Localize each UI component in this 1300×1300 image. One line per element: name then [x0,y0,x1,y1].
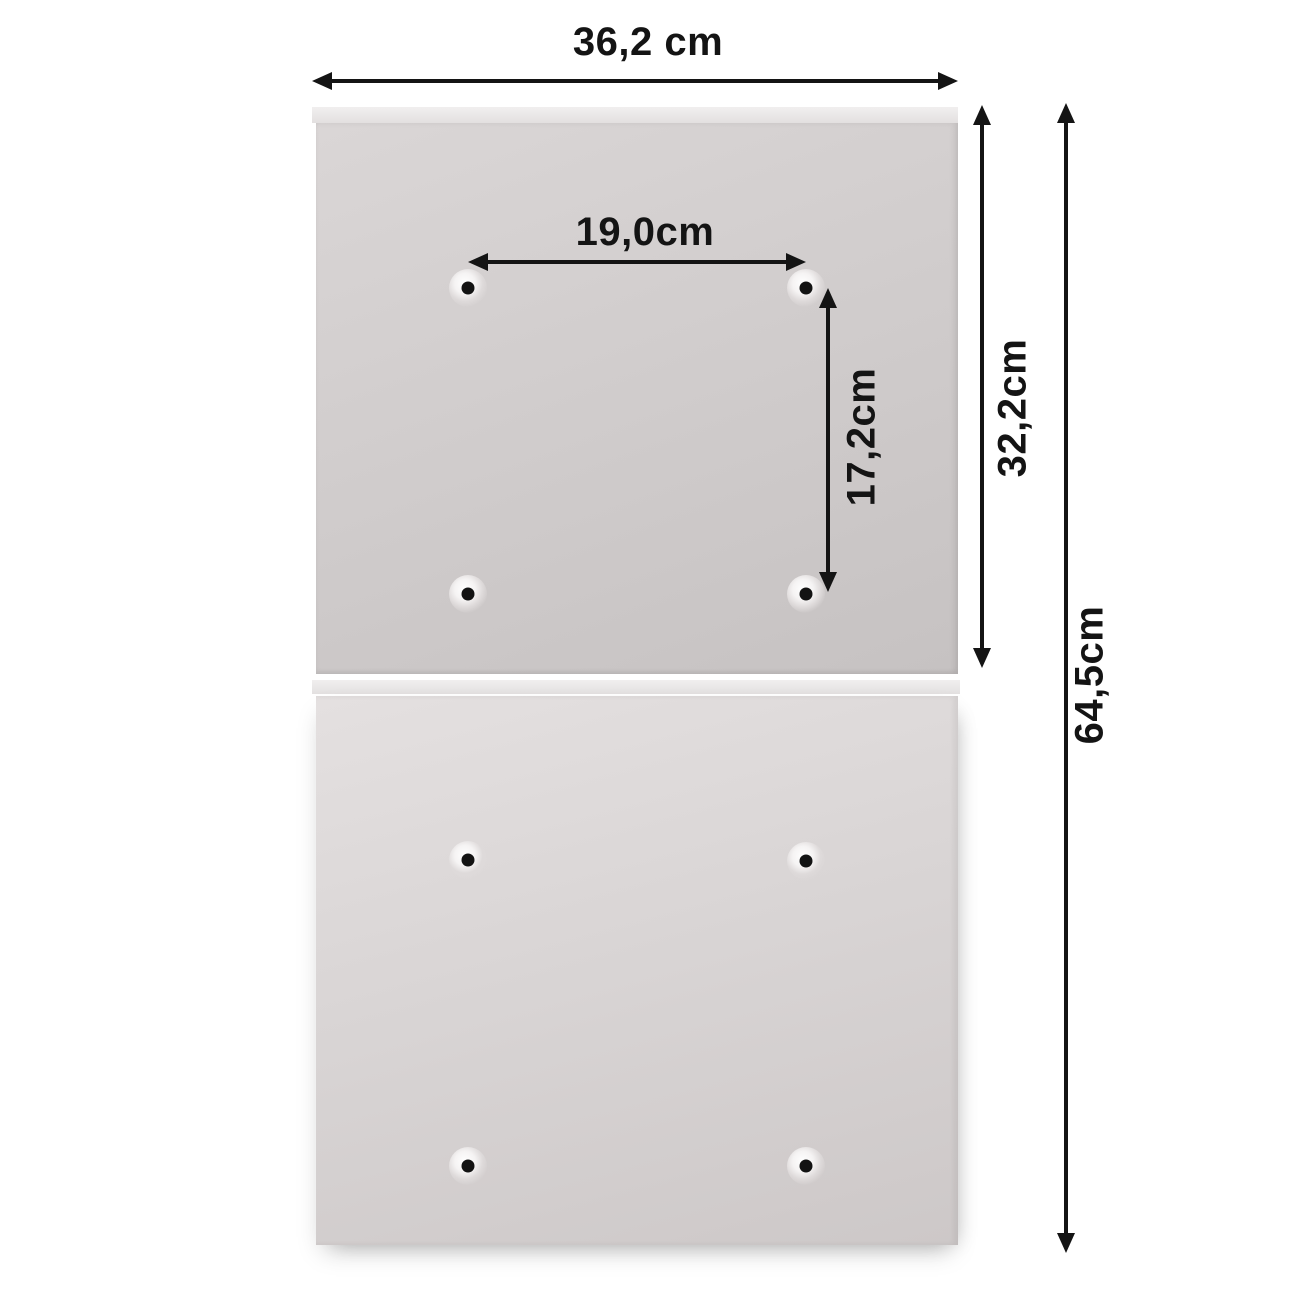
overall-width-dimension-line [320,79,950,83]
mounting-hole [449,575,487,613]
mounting-hole [449,841,487,879]
hole-center [800,588,813,601]
product-dimension-diagram: 36,2 cm 19,0cm 17,2cm 32,2cm 64,5cm [0,0,1300,1300]
arrowhead-right-icon [786,253,806,271]
mounting-hole [449,269,487,307]
arrowhead-up-icon [819,288,837,308]
hole-center [462,854,475,867]
hole-spacing-width-dimension-line [476,260,798,264]
total-height-label: 64,5cm [1068,606,1113,745]
mounting-hole [787,1147,825,1185]
hole-center [462,1160,475,1173]
mounting-hole [787,842,825,880]
hole-center [800,1160,813,1173]
overall-width-label: 36,2 cm [573,20,723,65]
hole-spacing-height-label: 17,2cm [840,368,885,507]
total-height-dimension-line [1064,111,1068,1245]
upper-panel-top-lip [312,107,958,123]
arrowhead-down-icon [973,648,991,668]
hole-center [800,855,813,868]
hole-center [800,282,813,295]
arrowhead-right-icon [938,72,958,90]
hole-spacing-width-label: 19,0cm [576,210,715,255]
hole-center [462,588,475,601]
arrowhead-down-icon [819,572,837,592]
hole-center [462,282,475,295]
hole-spacing-height-dimension-line [826,296,830,584]
arrowhead-down-icon [1057,1233,1075,1253]
mounting-hole [449,1147,487,1185]
lower-panel-top-lip [312,680,960,694]
upper-panel-height-label: 32,2cm [991,339,1036,478]
lower-panel [316,696,958,1245]
arrowhead-left-icon [468,253,488,271]
arrowhead-up-icon [1057,103,1075,123]
upper-panel-height-dimension-line [980,113,984,660]
arrowhead-up-icon [973,105,991,125]
arrowhead-left-icon [312,72,332,90]
